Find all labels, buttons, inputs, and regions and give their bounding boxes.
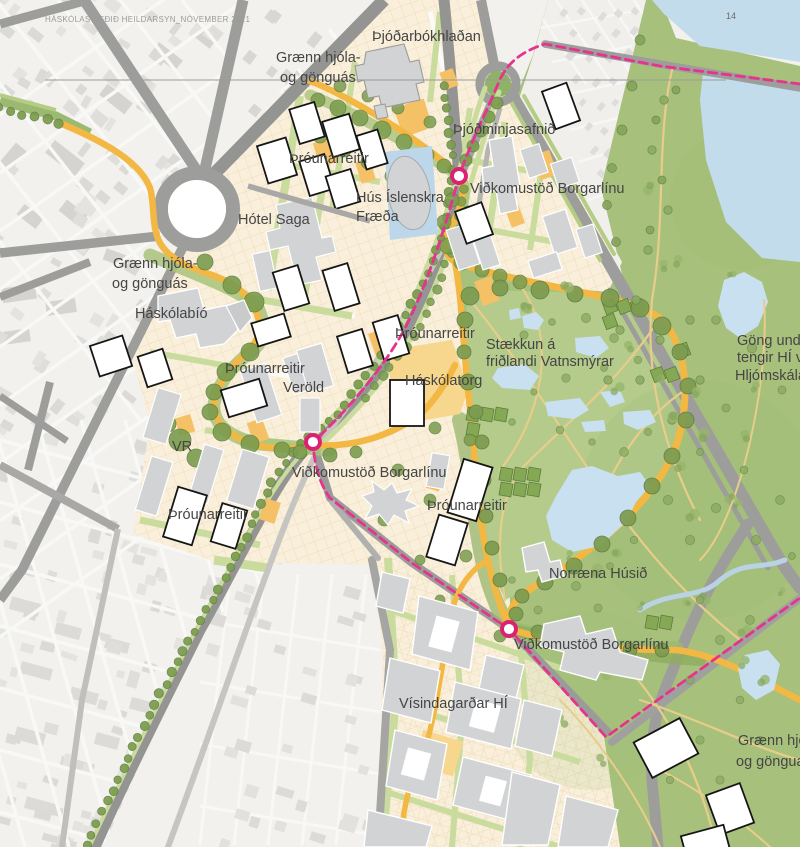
svg-text:Háskólabíó: Háskólabíó: [135, 306, 208, 322]
svg-text:Þróunarreitir: Þróunarreitir: [225, 361, 305, 377]
svg-text:Göng undir: Göng undir: [737, 333, 800, 349]
svg-text:Hótel Saga: Hótel Saga: [238, 212, 311, 228]
svg-text:og gönguás: og gönguás: [280, 70, 356, 86]
svg-text:Viðkomustöð Borgarlínu: Viðkomustöð Borgarlínu: [292, 465, 447, 481]
svg-text:friðlandi Vatnsmýrar: friðlandi Vatnsmýrar: [486, 354, 614, 370]
svg-text:Þjóðminjasafnið: Þjóðminjasafnið: [453, 122, 555, 138]
svg-text:Grænn hjó: Grænn hjó: [738, 733, 800, 749]
svg-text:og göngua: og göngua: [736, 754, 800, 770]
svg-text:og gönguás: og gönguás: [112, 276, 188, 292]
svg-text:Norræna Húsið: Norræna Húsið: [549, 566, 647, 582]
svg-text:Fræða: Fræða: [356, 209, 400, 225]
svg-text:HÁSKÓLASVÆÐIÐ HEILDARSYN_NÓVEM: HÁSKÓLASVÆÐIÐ HEILDARSYN_NÓVEMBER 2021: [45, 15, 250, 24]
svg-text:Viðkomustöð Borgarlínu: Viðkomustöð Borgarlínu: [514, 637, 669, 653]
svg-text:Grænn hjóla-: Grænn hjóla-: [113, 256, 198, 272]
svg-text:Stækkun á: Stækkun á: [486, 337, 556, 353]
svg-text:Grænn hjóla-: Grænn hjóla-: [276, 50, 361, 66]
svg-text:Háskólatorg: Háskólatorg: [405, 373, 482, 389]
svg-text:Hljómskála: Hljómskála: [735, 368, 800, 384]
svg-text:Veröld: Veröld: [283, 380, 324, 396]
svg-text:14: 14: [726, 11, 736, 21]
svg-text:Þróunarreitir: Þróunarreitir: [395, 326, 475, 342]
svg-text:Þróunarreitir: Þróunarreitir: [289, 151, 369, 167]
svg-text:Þróunarreitir: Þróunarreitir: [427, 498, 507, 514]
svg-text:Vísindagarðar HÍ: Vísindagarðar HÍ: [399, 695, 508, 712]
svg-text:Þjóðarbókhlaðan: Þjóðarbókhlaðan: [372, 29, 481, 45]
svg-text:Viðkomustöð Borgarlínu: Viðkomustöð Borgarlínu: [470, 181, 625, 197]
svg-text:tengir HÍ v: tengir HÍ v: [737, 349, 800, 366]
svg-text:VR: VR: [172, 439, 192, 455]
svg-text:Hús Íslenskra: Hús Íslenskra: [356, 189, 445, 206]
svg-text:Þróunarreitir: Þróunarreitir: [168, 507, 248, 523]
